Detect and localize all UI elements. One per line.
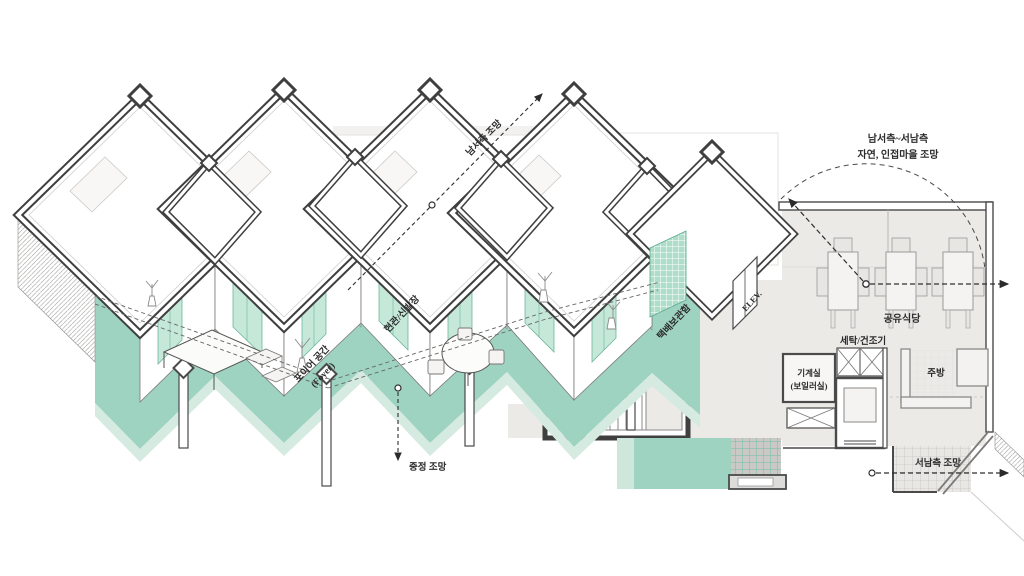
label-shared-dining: 공유식당 [884,312,922,325]
axonometric-floor-diagram: 남서측 조망 남서측~서남측 자연, 인접마을 조망 중정 조망 서남측 조망 … [0,0,1024,576]
washer-dryer-units [837,348,884,376]
label-kitchen: 주방 [927,367,945,379]
entrance-hall-floor [617,438,786,489]
plan-bottom-right-entrance [893,431,1024,541]
architectural-diagram-page: 남서측 조망 남서측~서남측 자연, 인접마을 조망 중정 조망 서남측 조망 … [0,0,1024,576]
label-laundry: 세탁/건조기 [840,335,886,347]
label-machine-room-1: 기계실 [797,368,821,378]
label-view-ssw: 서남측 조망 [915,457,961,469]
label-machine-room-2: (보일러실) [791,381,828,391]
label-view-courtyard: 중정 조망 [409,461,447,473]
label-view-range-1: 남서측~서남측 [868,132,928,145]
label-view-range-2: 자연, 인접마을 조망 [857,148,939,161]
